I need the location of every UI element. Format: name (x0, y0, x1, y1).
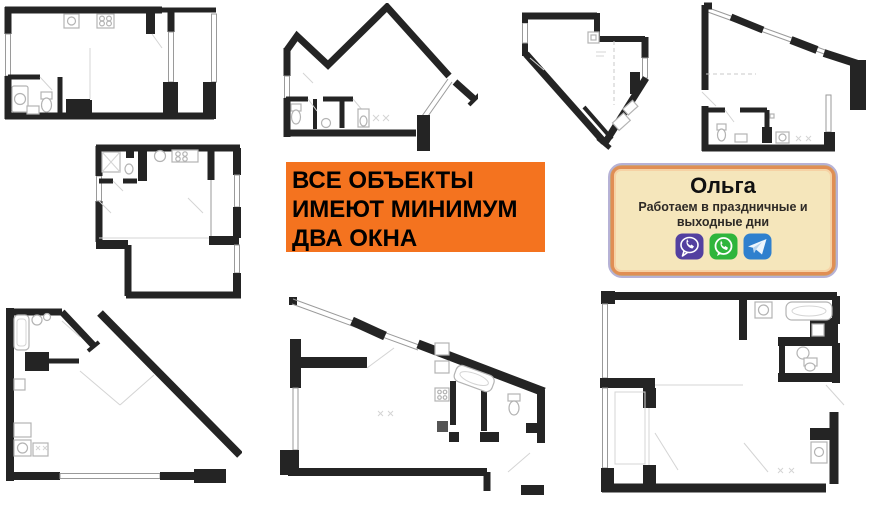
floorplan-5 (93, 143, 245, 300)
walls (280, 297, 544, 495)
floorplan-3 (518, 10, 650, 150)
flyer-collage: ВСЕ ОБЪЕКТЫ ИМЕЮТ МИНИМУМ ДВА ОКНА Ольга… (0, 0, 888, 512)
messenger-icons (675, 233, 772, 260)
floorplan-8 (598, 288, 848, 510)
bed-outline (615, 392, 645, 464)
stove-icon (33, 443, 48, 456)
stove-icon (435, 388, 449, 401)
fixtures (99, 150, 211, 238)
stove-icon (373, 115, 389, 121)
floorplan-4 (678, 2, 888, 154)
whatsapp-icon[interactable] (709, 233, 738, 260)
sink-icon (322, 119, 331, 128)
contact-subtitle: Работаем в праздничные и выходные дни (631, 200, 816, 230)
banner-line-3: ДВА ОКНА (292, 224, 545, 253)
walls (522, 13, 648, 148)
two-windows-banner: ВСЕ ОБЪЕКТЫ ИМЕЮТ МИНИМУМ ДВА ОКНА (286, 162, 545, 252)
viber-icon[interactable] (675, 233, 704, 260)
sink-icon (812, 324, 824, 336)
sink-icon (32, 315, 42, 325)
sink-icon (27, 106, 39, 114)
floorplan-1 (2, 3, 228, 122)
contact-name: Ольга (690, 174, 756, 198)
floorplan-2 (283, 3, 478, 151)
contact-card-body: Ольга Работаем в праздничные и выходные … (611, 166, 835, 275)
stove-icon (778, 468, 794, 473)
bathtub-icon (14, 315, 29, 350)
walls (285, 7, 479, 151)
sink-icon (735, 134, 747, 142)
toilet-icon (508, 394, 520, 401)
telegram-icon[interactable] (743, 233, 772, 260)
toilet-icon (125, 164, 133, 174)
fixtures (367, 343, 530, 472)
bathtub-icon (786, 302, 832, 320)
basin-icon (797, 347, 809, 359)
contact-card: Ольга Работаем в праздничные и выходные … (608, 163, 838, 278)
stove-icon (796, 136, 811, 141)
banner-line-1: ВСЕ ОБЪЕКТЫ (292, 166, 545, 195)
fridge-icon (435, 343, 449, 355)
sink-icon (437, 421, 448, 432)
sink-icon (155, 151, 166, 162)
banner-line-2: ИМЕЮТ МИНИМУМ (292, 195, 545, 224)
floorplan-7 (272, 293, 552, 511)
floorplan-6 (2, 303, 242, 488)
walls (7, 308, 240, 483)
counter-icon (14, 423, 31, 437)
